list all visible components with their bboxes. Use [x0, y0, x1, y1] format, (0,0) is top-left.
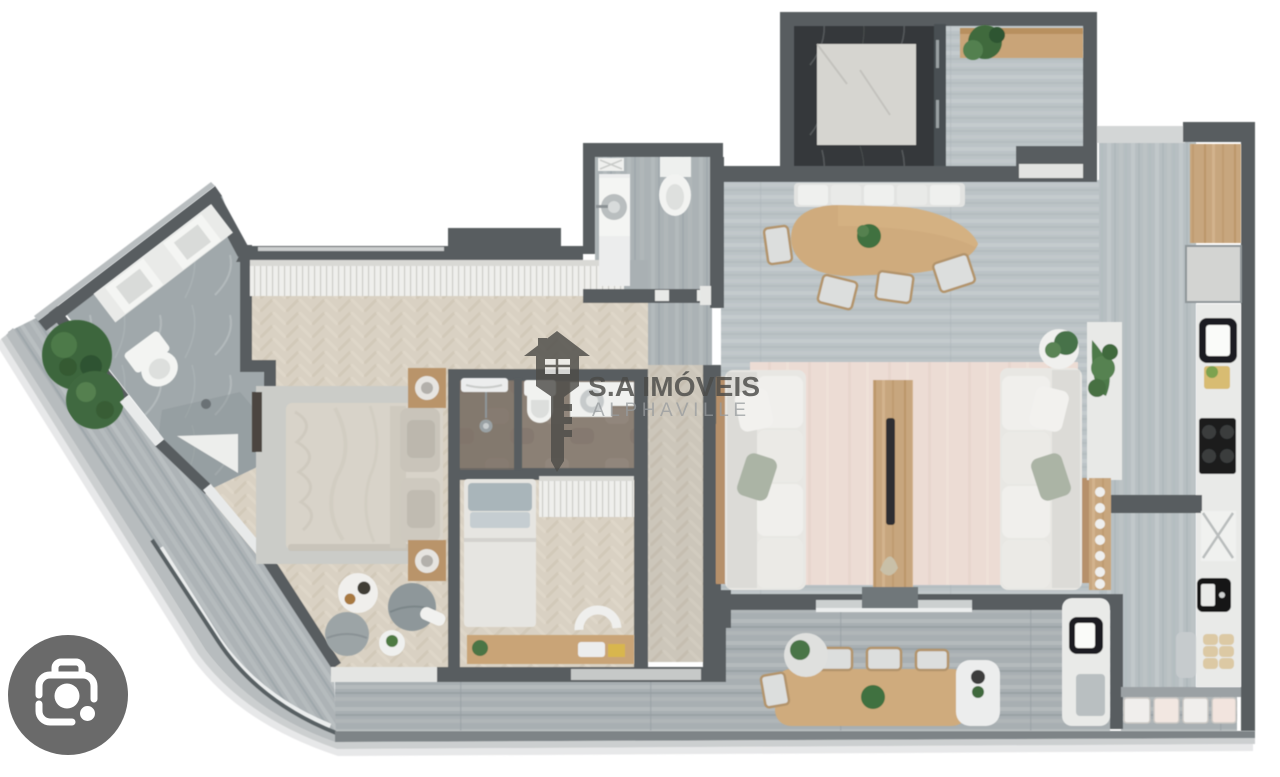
- svg-text:ALPHAVILLE: ALPHAVILLE: [592, 400, 751, 421]
- svg-text:S.A IMÓVEIS: S.A IMÓVEIS: [588, 371, 760, 402]
